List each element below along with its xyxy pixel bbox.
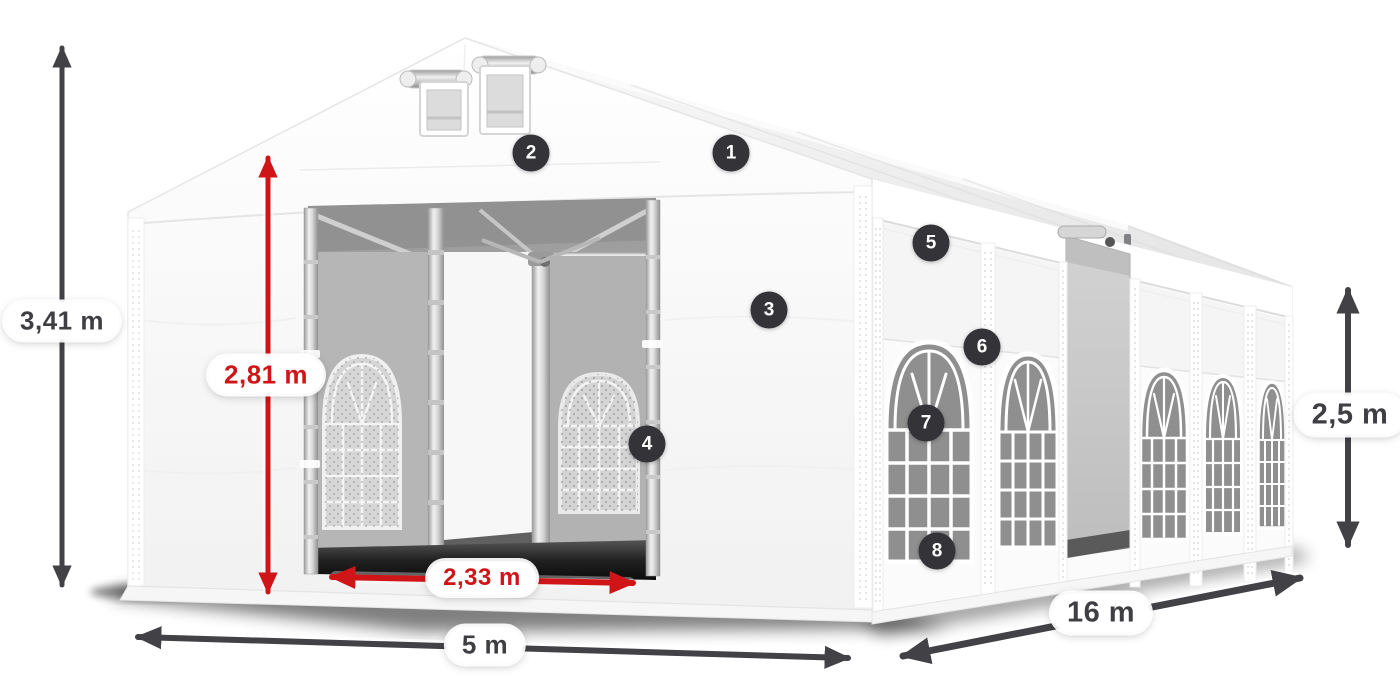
dimension-entrance-width: 2,33 m [428, 561, 536, 595]
dimension-total-height: 3,41 m [5, 303, 119, 340]
part-marker-3: 3 [751, 292, 788, 329]
see-through-gap [444, 252, 534, 574]
interior-window-left [324, 356, 400, 528]
part-marker-7: 7 [908, 405, 945, 442]
side-window-4 [1204, 376, 1242, 534]
rolled-door-icon [1058, 226, 1106, 238]
part-marker-6: 6 [964, 329, 1001, 366]
interior-pole-2 [532, 256, 550, 574]
interior-pole-1 [428, 208, 444, 568]
part-marker-1: 1 [713, 135, 750, 172]
side-window-3 [1140, 370, 1188, 540]
dimension-entrance-height: 2,81 m [209, 357, 323, 394]
dimension-wall-height: 2,5 m [1297, 396, 1400, 435]
part-marker-2: 2 [513, 135, 550, 172]
side-window-2 [998, 354, 1058, 548]
side-window-1 [886, 342, 972, 562]
entrance-opening [300, 190, 660, 585]
side-door-opening [1058, 226, 1130, 558]
left-corner-strap [128, 218, 144, 586]
dimension-side-length: 16 m [1052, 594, 1150, 633]
interior-window-right [560, 374, 638, 512]
diagram-canvas: 3,41 m 2,81 m 2,33 m 5 m 16 m 2,5 m 1 2 … [0, 0, 1400, 700]
part-marker-8: 8 [919, 533, 956, 570]
side-window-5 [1258, 382, 1286, 528]
right-corner-strap [854, 186, 872, 608]
dimension-front-width: 5 m [447, 627, 523, 664]
part-marker-5: 5 [913, 225, 950, 262]
tent-illustration [0, 0, 1400, 700]
part-marker-4: 4 [629, 426, 666, 463]
